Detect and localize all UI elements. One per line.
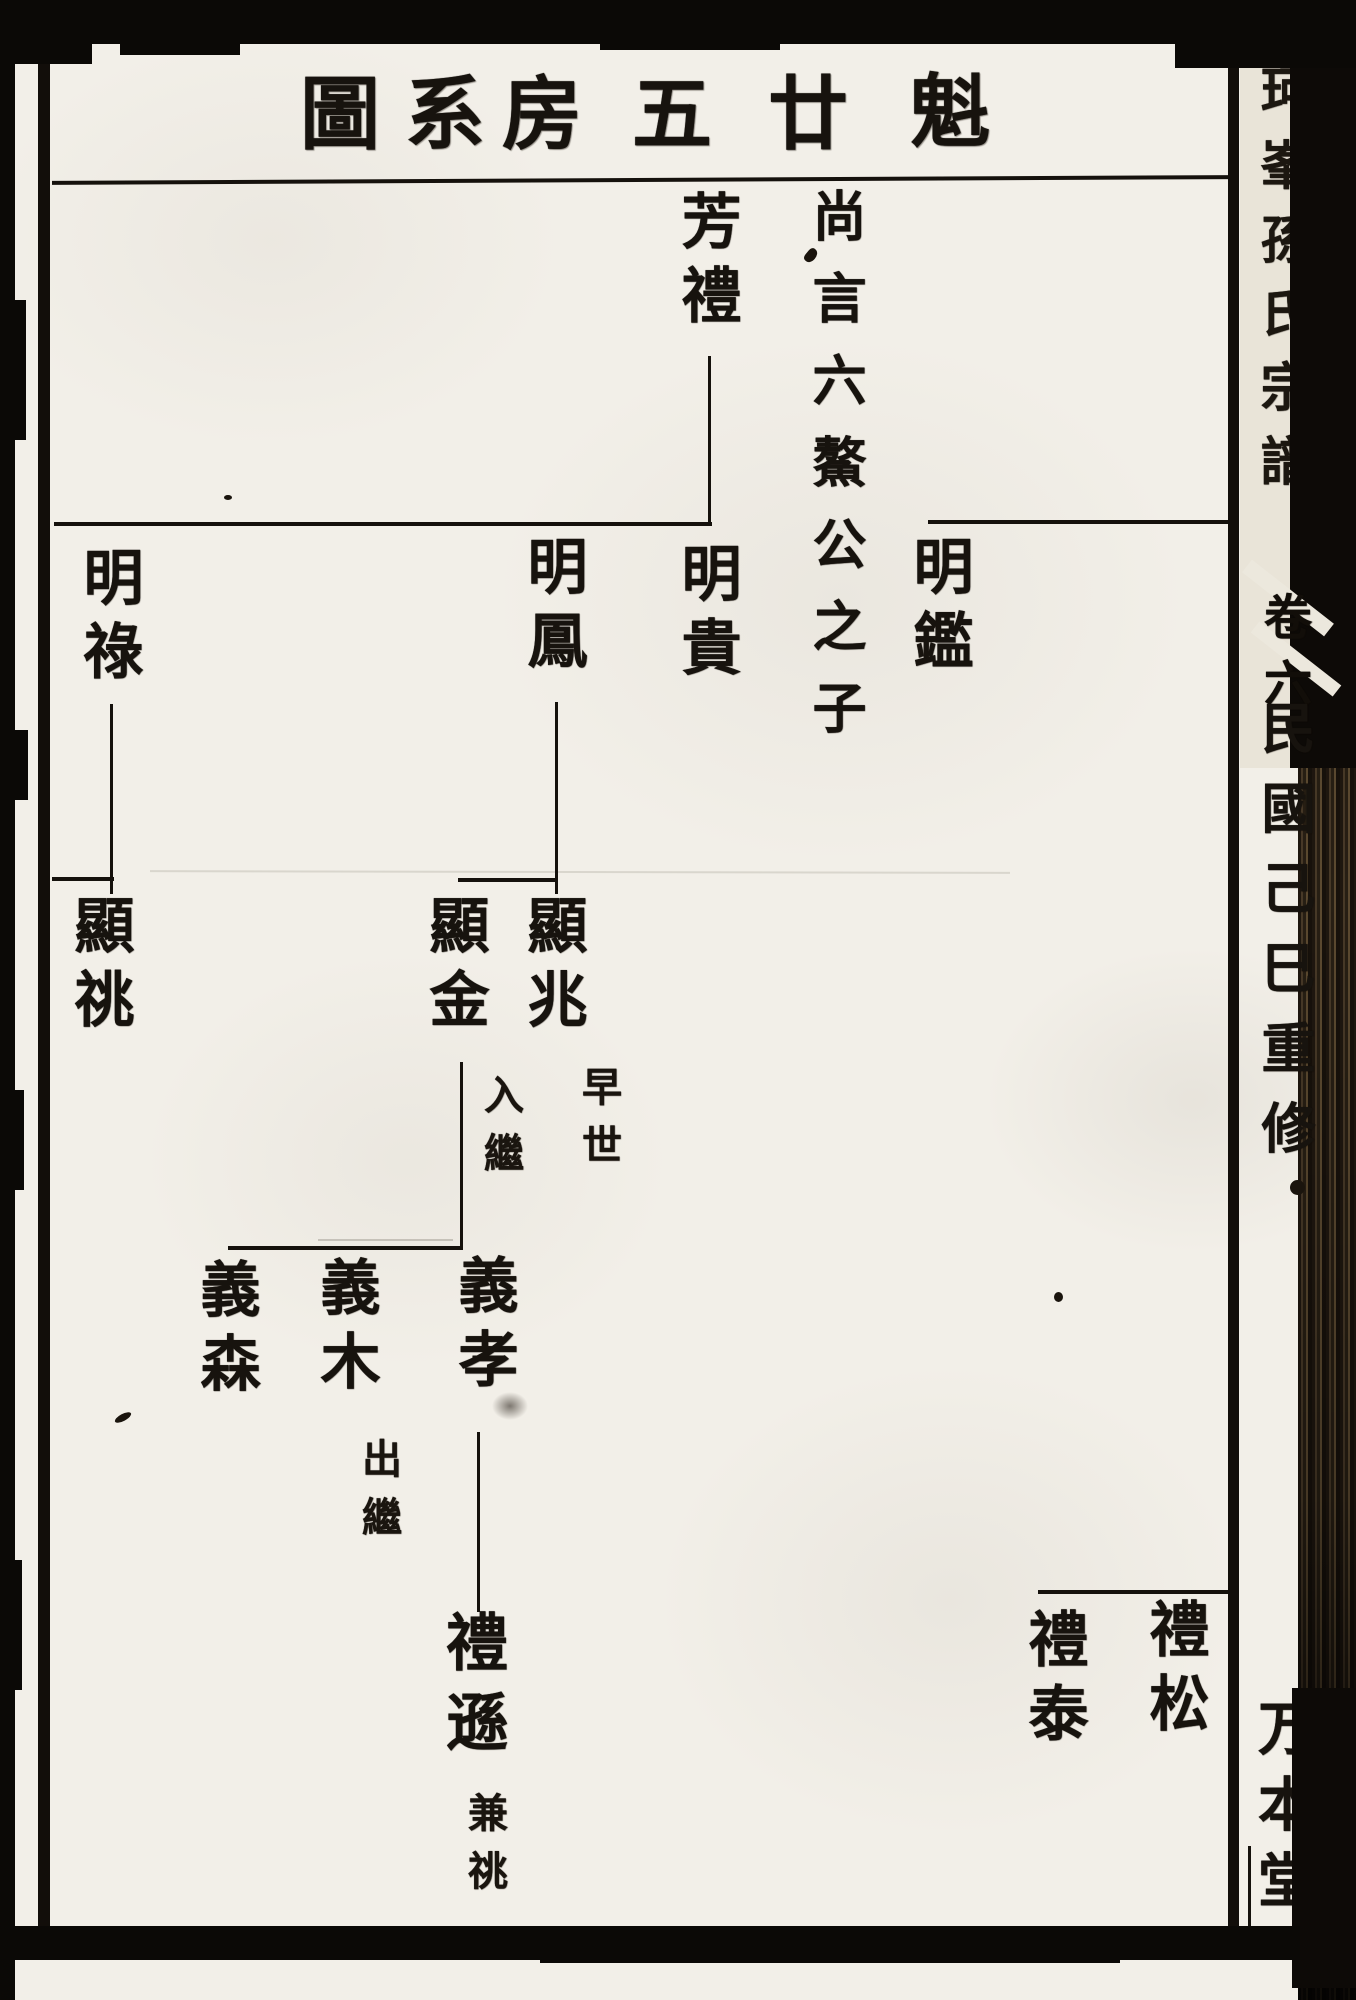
rule-under-title	[52, 175, 1233, 185]
ink-speck	[1290, 1180, 1305, 1195]
generation-rule-right	[928, 520, 1233, 524]
page-title-char: 系	[405, 74, 485, 154]
border-line-right	[1228, 42, 1239, 1937]
margin-fold-line	[1248, 1846, 1251, 1926]
person-yimu: 義木	[315, 1256, 375, 1404]
page-edge-left-bump	[0, 300, 26, 440]
sibling-bar-li-right	[1038, 1590, 1234, 1594]
page-edge-top-bump	[120, 40, 240, 55]
sibling-bar-yi	[228, 1246, 463, 1250]
person-lixun-note: 兼祧	[464, 1792, 504, 1908]
paper-crease	[150, 870, 1010, 874]
person-xiantiao: 顯祧	[69, 894, 129, 1042]
border-line-left	[38, 42, 50, 1947]
page-edge-bottom-bump	[540, 1956, 1120, 1963]
connector-mingfeng-xianzhao	[555, 702, 558, 894]
person-yimu-note: 出繼	[358, 1438, 398, 1554]
page-title-char: 房	[502, 74, 582, 154]
person-yixiao: 義孝	[453, 1254, 513, 1402]
page-edge-top-bump	[600, 40, 780, 50]
person-xianjin-note: 入繼	[480, 1074, 520, 1190]
ink-speck	[224, 495, 232, 500]
ink-speck	[113, 1410, 132, 1425]
ancestor-note: 尚言六鰲公之子	[796, 188, 875, 762]
person-lisong: 禮松	[1144, 1598, 1204, 1746]
person-minglu: 明祿	[78, 546, 138, 694]
genealogy-page: 圖 系 房 五 廿 魁 芳禮 尚言六鰲公之子 明鑑 明貴 明鳳 明祿 顯兆 早世…	[0, 0, 1356, 2000]
generation-rule-left	[54, 522, 712, 526]
page-edge-left-bump	[0, 1090, 24, 1190]
ink-smudge	[492, 1392, 528, 1420]
paper-crease	[318, 1239, 453, 1241]
edition-note: 民國己巳重修	[1245, 700, 1324, 1180]
connector-fangli-minggui	[708, 356, 711, 526]
page-title-char: 廿	[768, 74, 848, 154]
page-title-char: 圖	[300, 74, 380, 154]
person-mingfeng: 明鳳	[522, 535, 582, 683]
person-fangli: 芳禮	[676, 190, 736, 338]
page-edge-top-bump	[1175, 0, 1356, 68]
connector-xianjin-down	[460, 1062, 463, 1250]
page-title-char: 魁	[910, 72, 990, 152]
page-edge-top	[0, 0, 1356, 44]
person-xianzhao: 顯兆	[522, 894, 582, 1042]
stub-bar-left	[52, 877, 114, 881]
person-xianjin: 顯金	[424, 894, 484, 1042]
person-xianzhao-note: 早世	[578, 1066, 618, 1182]
sibling-bar-xian	[458, 878, 558, 882]
person-litai: 禮泰	[1023, 1608, 1083, 1756]
page-edge-bottom	[0, 1926, 1300, 1960]
person-mingjian: 明鑑	[908, 535, 968, 683]
person-minggui: 明貴	[676, 542, 736, 690]
page-title-char: 五	[632, 74, 712, 154]
connector-yixiao-lixun	[477, 1432, 480, 1612]
spine-ink-blob-bottom	[1292, 1688, 1356, 1988]
page-edge-left-bump	[0, 730, 28, 800]
person-yisen: 義森	[195, 1258, 255, 1406]
page-edge-left-bump	[0, 1560, 22, 1690]
person-lixun: 禮遜	[440, 1610, 502, 1770]
connector-minglu-xiantiao	[110, 704, 113, 894]
ink-speck	[1054, 1292, 1063, 1302]
